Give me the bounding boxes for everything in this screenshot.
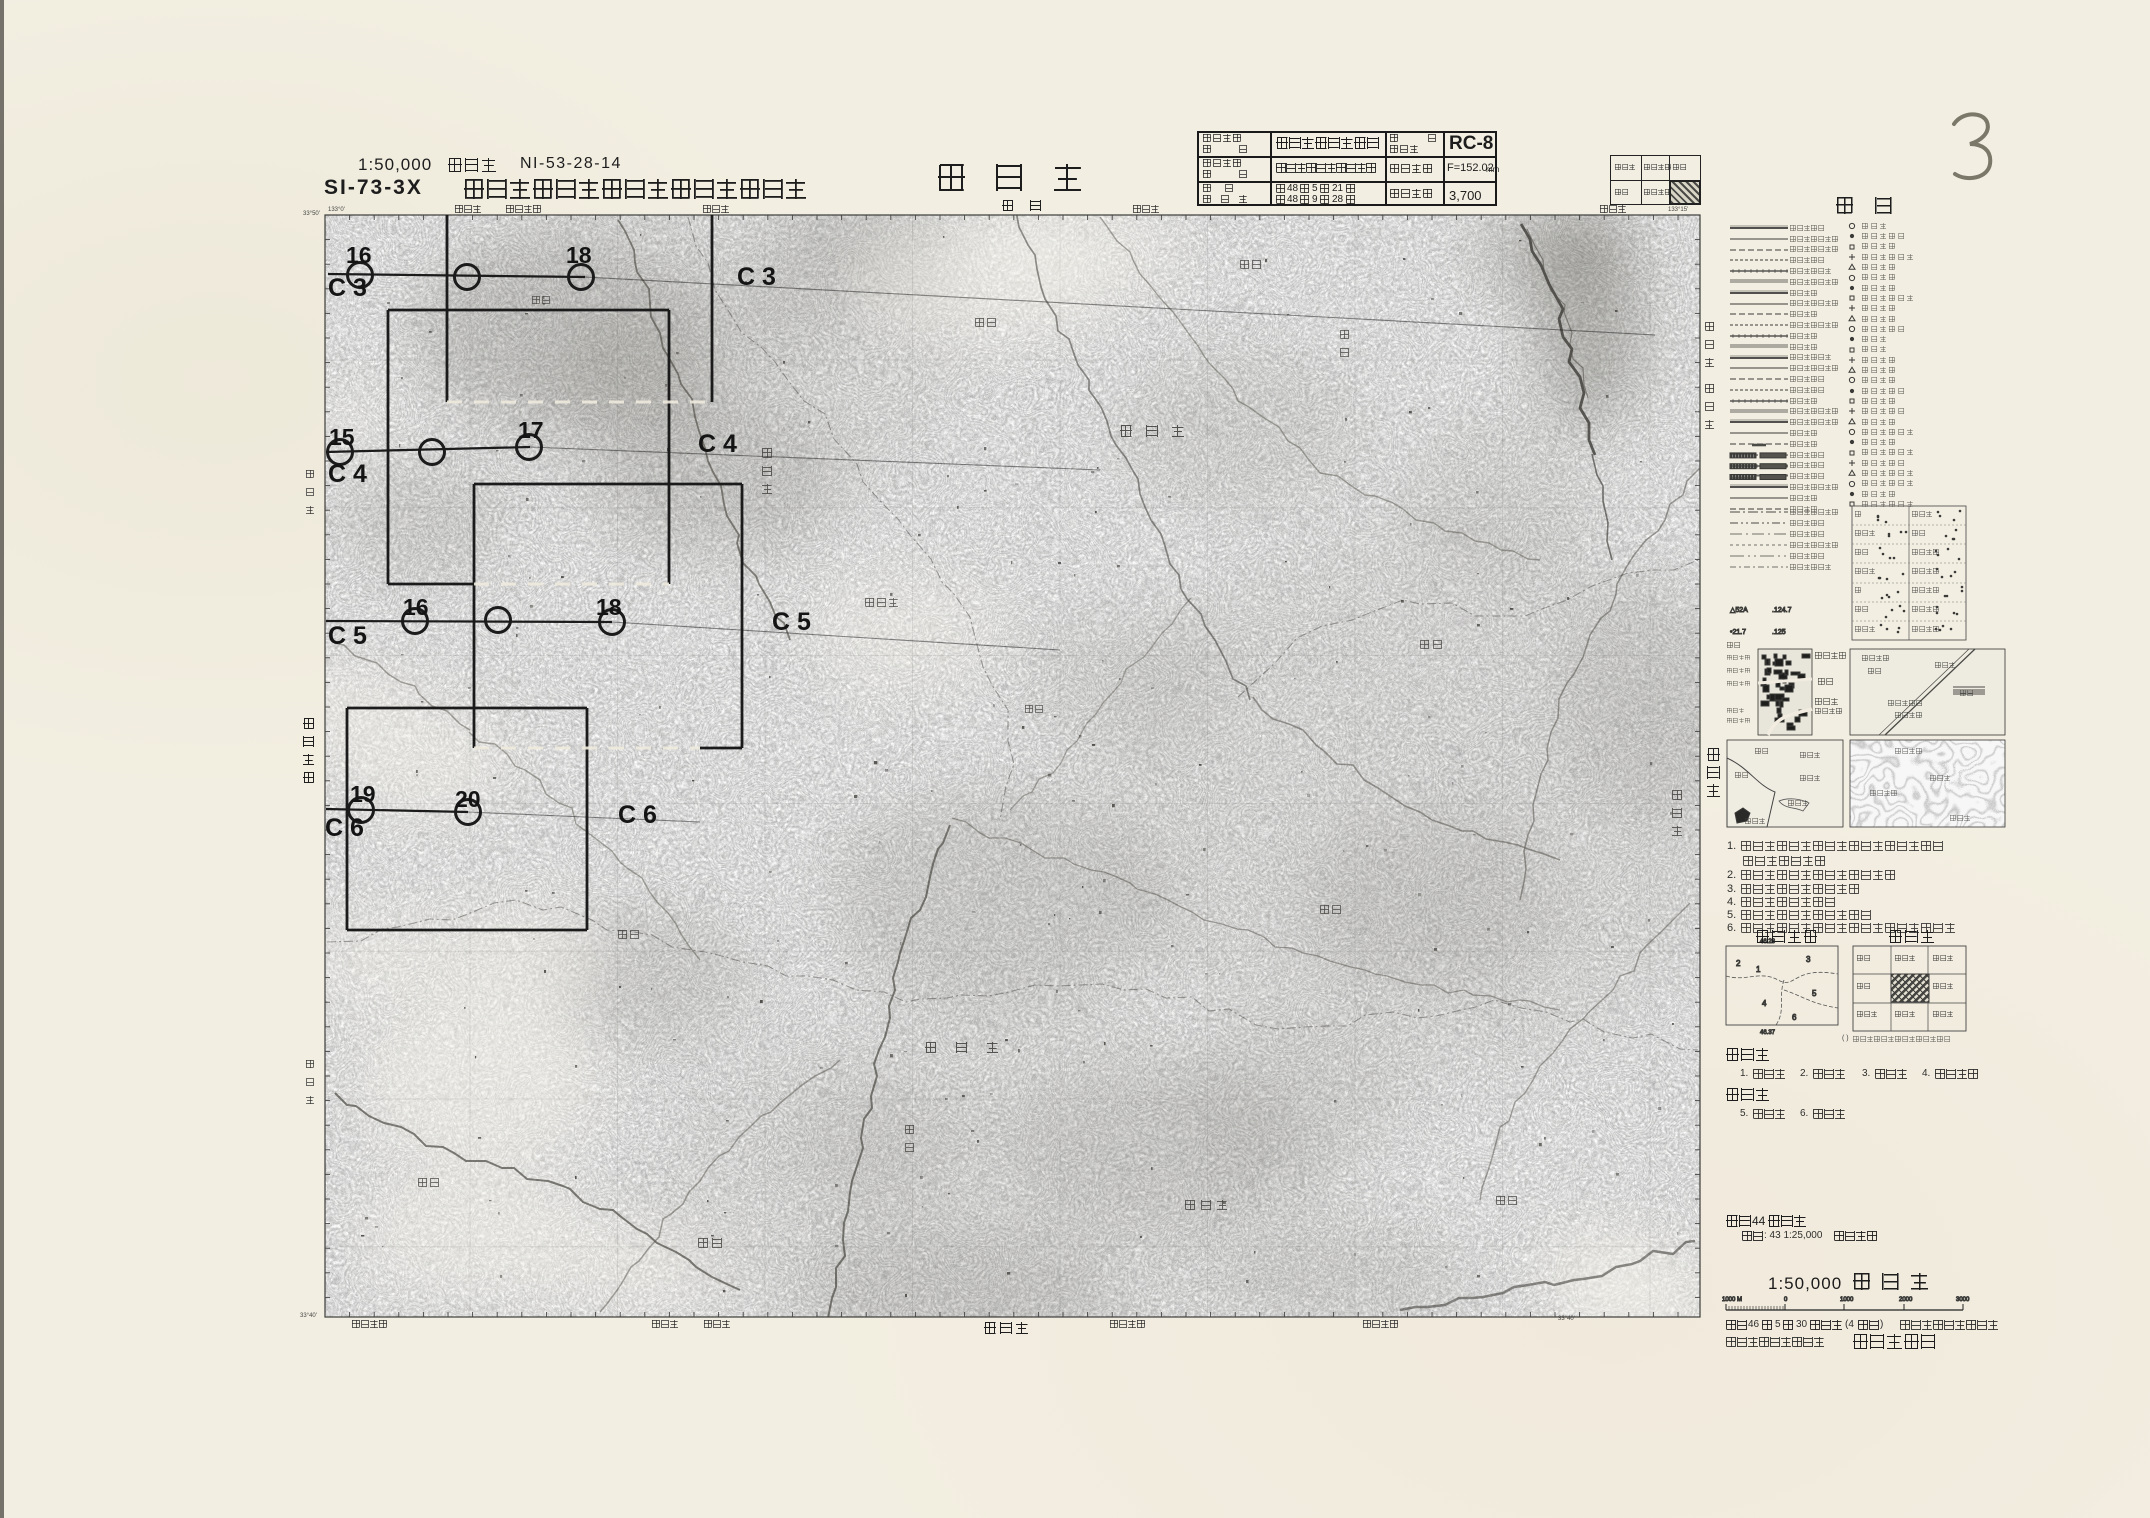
svg-text:.125: .125 [1772,629,1786,636]
svg-text:3000: 3000 [1956,1297,1970,1303]
svg-text:C 5: C 5 [772,608,811,636]
svg-text:C 5: C 5 [328,622,367,650]
svg-text:.124.7: .124.7 [1772,607,1792,614]
svg-text:16: 16 [346,242,372,268]
svg-text:C 4: C 4 [328,460,367,488]
svg-text:17: 17 [518,417,544,443]
svg-text:1: 1 [1756,965,1761,974]
svg-text:•21.7: •21.7 [1730,629,1746,636]
svg-text:2000: 2000 [1899,1297,1913,1303]
svg-text:C 6: C 6 [618,801,657,829]
svg-text:1000: 1000 [1840,1297,1854,1303]
svg-text:C 3: C 3 [737,263,776,291]
svg-text:5: 5 [1812,989,1817,998]
svg-text:△52A: △52A [1730,607,1748,614]
svg-text:C 4: C 4 [698,430,737,458]
svg-text:2: 2 [1736,959,1741,968]
svg-text:3: 3 [1806,955,1811,964]
svg-text:1000 M: 1000 M [1722,1297,1742,1303]
svg-text:16: 16 [403,594,429,620]
svg-text:15: 15 [329,424,355,450]
svg-text:19: 19 [350,781,376,807]
svg-text:4: 4 [1762,999,1767,1008]
svg-text:20: 20 [455,786,481,812]
svg-text:0: 0 [1784,1297,1788,1303]
svg-text:18: 18 [596,594,622,620]
svg-text:18: 18 [566,242,592,268]
svg-text:C 3: C 3 [328,274,367,302]
svg-text:6: 6 [1792,1013,1797,1022]
svg-text:C 6: C 6 [325,814,364,842]
svg-text:46.37: 46.37 [1760,1030,1776,1036]
